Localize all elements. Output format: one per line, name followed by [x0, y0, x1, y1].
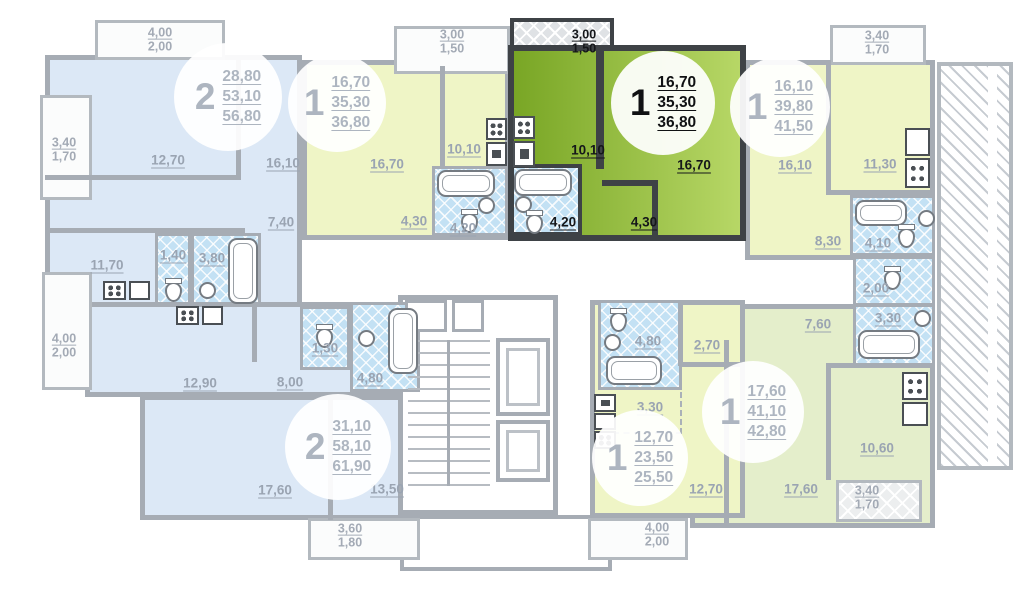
- wall: [826, 190, 935, 195]
- room-count: 1: [304, 82, 325, 124]
- bathtub-icon: [606, 356, 662, 385]
- room-area-label: 17,60: [784, 482, 818, 497]
- balcony-area-label: 3,40 1,70: [52, 136, 76, 165]
- sink-icon: [914, 310, 931, 327]
- balcony-area-label: 4,00 2,00: [52, 332, 76, 361]
- balcony-area-label: 3,40 1,70: [865, 29, 889, 58]
- apartment-badge-selected[interactable]: 1 16,70 35,30 36,80: [611, 51, 715, 155]
- balcony-bottom-left-bottom: [308, 518, 420, 560]
- room-area-label: 4,80: [357, 371, 383, 386]
- room-count: 2: [305, 426, 326, 468]
- oven-icon: [513, 141, 535, 167]
- room-area-label: 16,70: [677, 158, 711, 173]
- room-area-label: 1,40: [160, 248, 186, 263]
- balcony-area-label: 4,00 2,00: [645, 521, 669, 550]
- apartment-badge[interactable]: 1 16,70 35,30 36,80: [288, 54, 386, 152]
- stove-icon: [176, 306, 199, 325]
- room-count: 2: [195, 76, 216, 118]
- entrance-lobby: [400, 515, 612, 571]
- room-count: 1: [607, 437, 628, 479]
- oven-icon: [486, 142, 507, 166]
- wall: [602, 180, 658, 186]
- kitchen-sink-icon: [202, 306, 223, 325]
- room-area-label: 16,70: [370, 157, 404, 172]
- bathtub-icon: [228, 238, 258, 304]
- wall: [45, 175, 241, 180]
- room-area-label: 8,00: [277, 375, 303, 390]
- room-area-label: 12,70: [689, 482, 723, 497]
- room-area-label: 16,10: [266, 156, 300, 171]
- elevator-shaft[interactable]: [496, 420, 550, 482]
- wall: [45, 228, 245, 233]
- apartment-badge[interactable]: 2 31,10 58,10 61,90: [285, 394, 391, 500]
- sink-icon: [478, 197, 495, 214]
- utility-shaft: [452, 300, 484, 332]
- room-area-label: 11,30: [863, 157, 896, 172]
- balcony-area-label: 3,40 1,70: [855, 484, 879, 513]
- wall: [826, 363, 935, 368]
- balcony-area-label: 3,60 1,80: [338, 522, 362, 551]
- bathtub-icon: [855, 200, 907, 226]
- hatch-gap: [988, 66, 997, 466]
- balcony-area-label: 3,00 1,50: [572, 28, 596, 57]
- stove-icon: [905, 158, 930, 188]
- room-area-label: 3,30: [875, 311, 901, 326]
- balcony-area-label: 3,00 1,50: [440, 28, 464, 57]
- wall: [252, 302, 257, 362]
- room-count: 1: [720, 391, 741, 433]
- adjacent-section-hatched: [937, 62, 1013, 470]
- room-count: 1: [747, 86, 768, 128]
- room-area-label: 1,30: [312, 341, 338, 356]
- apartment-badge[interactable]: 1 12,70 23,50 25,50: [592, 410, 688, 506]
- kitchen-sink-icon: [129, 281, 150, 300]
- bathtub-icon: [514, 169, 572, 196]
- wall: [826, 60, 831, 193]
- room-area-label: 8,30: [815, 234, 841, 249]
- apartment-badge[interactable]: 1 16,10 39,80 41,50: [730, 57, 830, 157]
- stove-icon: [486, 118, 507, 140]
- room-area-label: 4,30: [401, 214, 427, 229]
- wall: [440, 66, 445, 166]
- room-area-label: 12,90: [183, 376, 217, 391]
- room-area-label: 16,10: [778, 158, 812, 173]
- apartment-badge[interactable]: 2 28,80 53,10 56,80: [174, 43, 282, 151]
- bathtub-icon: [437, 170, 495, 197]
- room-area-label: 10,10: [571, 143, 605, 158]
- stair-divider: [447, 340, 450, 486]
- elevator-shaft[interactable]: [496, 338, 550, 416]
- kitchen-sink-icon: [905, 128, 930, 156]
- room-area-label: 4,80: [635, 334, 661, 349]
- balcony-area-label: 4,00 2,00: [148, 26, 172, 55]
- room-area-label: 2,00: [863, 281, 889, 296]
- room-area-label: 3,80: [199, 251, 225, 266]
- room-area-label: 4,20: [550, 215, 576, 230]
- room-area-label: 17,60: [258, 483, 292, 498]
- room-area-label: 4,20: [450, 221, 476, 236]
- room-area-label: 10,10: [447, 142, 481, 157]
- sink-icon: [358, 330, 375, 347]
- oven-icon: [594, 394, 616, 412]
- stove-icon: [103, 281, 126, 300]
- sink-icon: [918, 210, 935, 227]
- room-area-label: 7,60: [805, 317, 831, 332]
- kitchen-sink-icon: [902, 402, 928, 426]
- wall: [678, 300, 683, 366]
- sink-icon: [604, 334, 621, 351]
- room-area-label: 7,40: [268, 215, 294, 230]
- room-area-label: 4,30: [631, 215, 657, 230]
- stove-icon: [513, 116, 535, 139]
- bathtub-icon: [858, 330, 920, 359]
- bathtub-icon: [388, 308, 418, 374]
- floor-plan: 12,70 16,10 7,40 11,70 1,40 3,80 4,00 2,…: [0, 0, 1024, 591]
- room-area-label: 10,60: [860, 441, 894, 456]
- wall: [826, 366, 831, 480]
- room-area-label: 11,70: [90, 258, 123, 273]
- sink-icon: [199, 282, 216, 299]
- room-area-label: 4,10: [865, 236, 891, 251]
- apartment-badge[interactable]: 1 17,60 41,10 42,80: [702, 361, 804, 463]
- room-count: 1: [630, 82, 651, 124]
- room-area-label: 2,70: [694, 338, 720, 353]
- stove-icon: [902, 372, 928, 400]
- room-area-label: 12,70: [151, 153, 185, 168]
- balcony-bottom-mid: [588, 518, 688, 560]
